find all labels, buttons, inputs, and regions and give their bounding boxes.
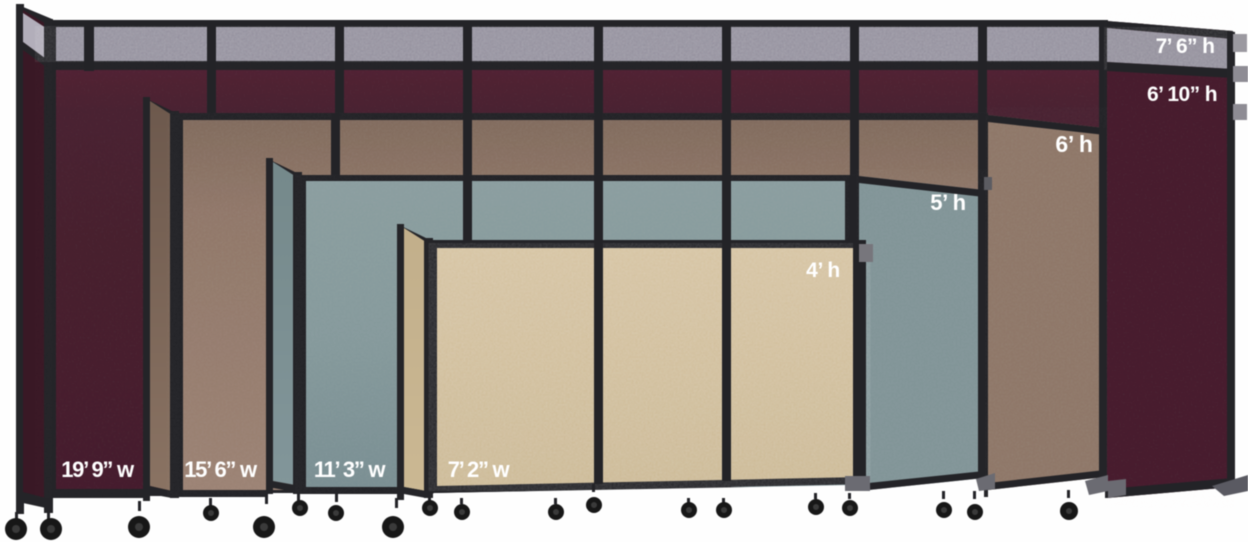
svg-text:15’ 6” w: 15’ 6” w	[184, 457, 258, 482]
svg-text:7’ 2” w: 7’ 2” w	[448, 457, 511, 482]
svg-text:7’ 6” h: 7’ 6” h	[1156, 35, 1215, 58]
svg-text:6’ 10” h: 6’ 10” h	[1147, 83, 1217, 106]
svg-text:11’ 3” w: 11’ 3” w	[314, 457, 387, 482]
svg-text:6’ h: 6’ h	[1055, 131, 1092, 157]
svg-text:4’ h: 4’ h	[806, 259, 840, 282]
svg-text:5’ h: 5’ h	[930, 190, 966, 215]
svg-text:19’ 9” w: 19’ 9” w	[61, 457, 135, 482]
